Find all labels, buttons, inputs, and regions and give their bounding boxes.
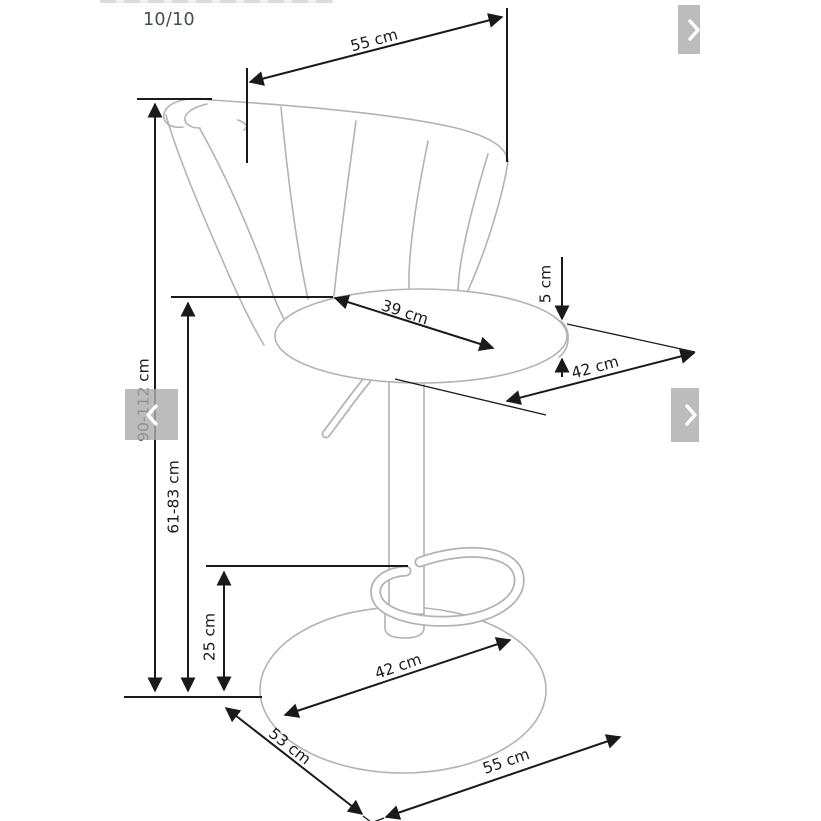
- gallery-prev-button[interactable]: [125, 389, 178, 440]
- dim-label-base-side: 53 cm: [265, 724, 314, 768]
- dim-label-base-front: 55 cm: [480, 745, 532, 778]
- chevron-left-icon: [144, 403, 160, 427]
- gallery-next-button[interactable]: [671, 388, 699, 442]
- dim-label-footrest-height: 25 cm: [200, 613, 218, 661]
- gallery-corner-next-button[interactable]: [678, 5, 700, 54]
- dim-label-seat-edge-thickness: 5 cm: [536, 265, 554, 303]
- product-gallery-viewport: 10/10: [0, 0, 821, 821]
- chevron-right-icon: [686, 18, 700, 42]
- dim-label-seat-height: 61-83 cm: [164, 460, 182, 534]
- chevron-right-icon: [683, 403, 699, 427]
